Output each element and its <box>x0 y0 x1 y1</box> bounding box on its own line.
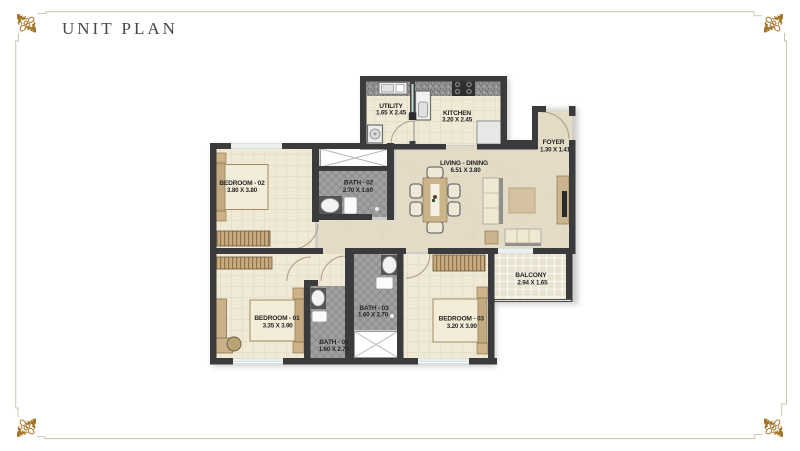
svg-text:3.20 X 2.45: 3.20 X 2.45 <box>442 117 473 124</box>
svg-text:BATH - 02: BATH - 02 <box>344 180 374 187</box>
svg-text:2.70 X 1.60: 2.70 X 1.60 <box>343 187 374 194</box>
svg-text:1.30 X 1.41: 1.30 X 1.41 <box>540 147 571 154</box>
svg-text:BEDROOM - 03: BEDROOM - 03 <box>439 315 485 322</box>
svg-text:1.65 X 2.45: 1.65 X 2.45 <box>376 110 407 117</box>
svg-text:BEDROOM - 02: BEDROOM - 02 <box>219 180 265 187</box>
svg-text:FOYER: FOYER <box>543 139 565 146</box>
svg-text:3.20 X 3.90: 3.20 X 3.90 <box>447 323 478 330</box>
svg-text:3.35 X 3.90: 3.35 X 3.90 <box>263 322 294 329</box>
svg-text:1.60 X 2.70: 1.60 X 2.70 <box>358 312 389 319</box>
svg-text:BATH - 01: BATH - 01 <box>319 339 349 346</box>
svg-text:BALCONY: BALCONY <box>515 272 547 279</box>
svg-text:LIVING - DINING: LIVING - DINING <box>440 160 488 167</box>
svg-text:2.94 X 1.65: 2.94 X 1.65 <box>517 280 548 287</box>
svg-text:6.51 X 3.80: 6.51 X 3.80 <box>450 167 481 174</box>
svg-text:1.60 X 2.70: 1.60 X 2.70 <box>319 346 350 353</box>
svg-text:3.80 X 3.80: 3.80 X 3.80 <box>227 187 258 194</box>
svg-text:BEDROOM - 01: BEDROOM - 01 <box>254 315 300 322</box>
